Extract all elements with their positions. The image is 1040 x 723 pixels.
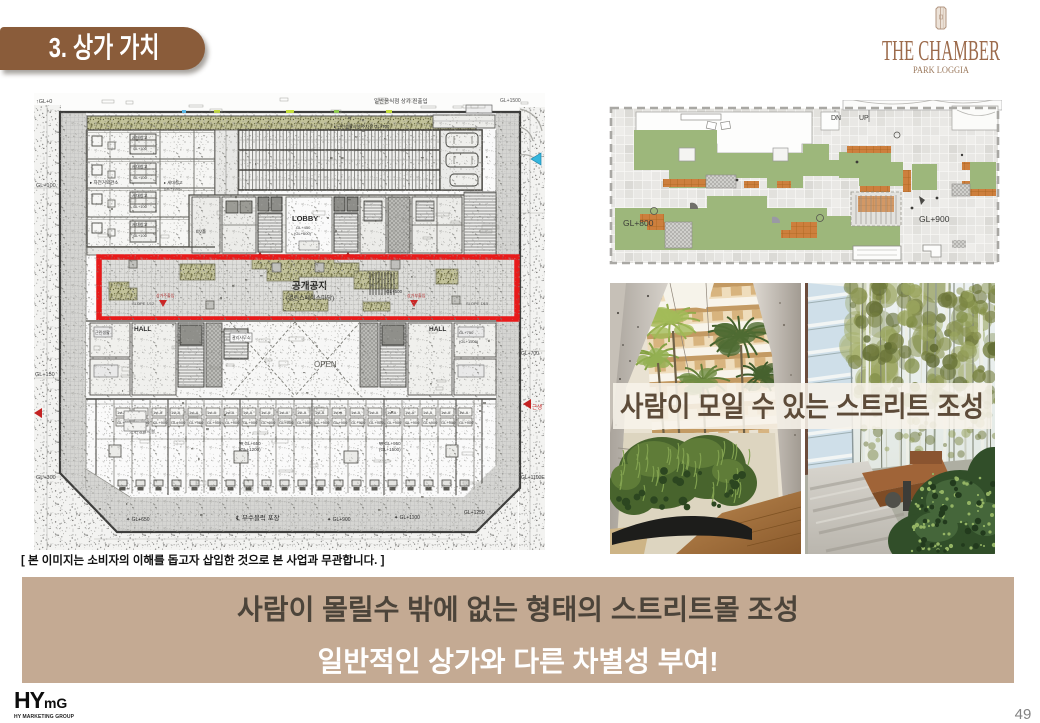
svg-text:GL+700: GL+700 <box>521 351 539 357</box>
svg-text:GL+800: GL+800 <box>623 218 654 228</box>
svg-text:UP: UP <box>859 115 869 122</box>
svg-text:THE CHAMBER: THE CHAMBER <box>882 36 1000 67</box>
svg-text:GL+900: GL+900 <box>919 214 950 224</box>
svg-text:근생: 근생 <box>532 403 542 411</box>
svg-text:GL+1100E: GL+1100E <box>521 475 545 481</box>
svg-text:PARK LOGGIA: PARK LOGGIA <box>913 65 969 75</box>
svg-text:GL+100: GL+100 <box>36 183 56 189</box>
svg-text:DN: DN <box>831 115 841 122</box>
svg-text:GL+300: GL+300 <box>36 475 56 481</box>
svg-text:GL+1500: GL+1500 <box>500 98 521 104</box>
svg-text:사람이 모일 수 있는 스트리트 조성: 사람이 모일 수 있는 스트리트 조성 <box>620 391 984 422</box>
svg-text:GL+150: GL+150 <box>35 372 55 378</box>
svg-text:↑GL+0: ↑GL+0 <box>36 99 52 105</box>
